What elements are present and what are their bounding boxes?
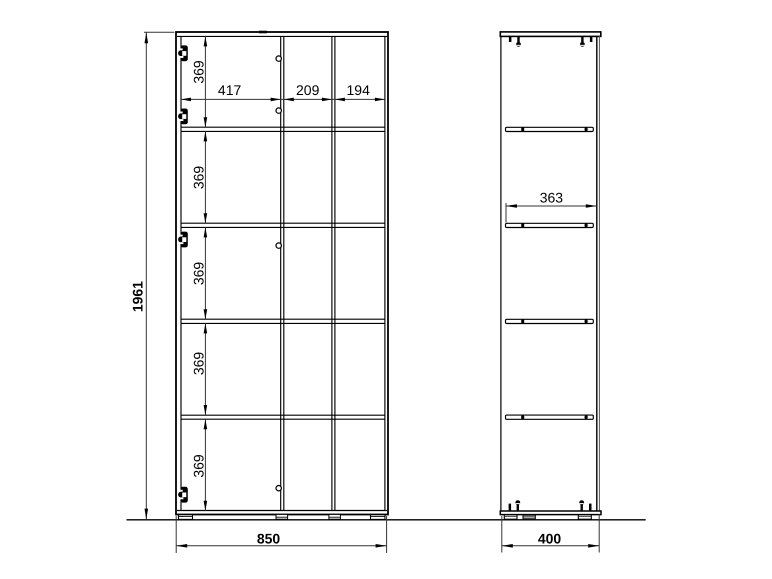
- svg-text:400: 400: [538, 530, 562, 546]
- svg-text:363: 363: [540, 190, 564, 206]
- svg-text:369: 369: [191, 352, 207, 376]
- svg-text:194: 194: [347, 82, 371, 98]
- svg-text:369: 369: [191, 60, 207, 84]
- svg-text:1961: 1961: [130, 281, 146, 312]
- svg-text:417: 417: [218, 82, 242, 98]
- svg-text:369: 369: [191, 454, 207, 478]
- svg-text:369: 369: [191, 166, 207, 190]
- svg-text:850: 850: [257, 530, 281, 546]
- svg-text:209: 209: [296, 82, 320, 98]
- svg-text:369: 369: [191, 262, 207, 286]
